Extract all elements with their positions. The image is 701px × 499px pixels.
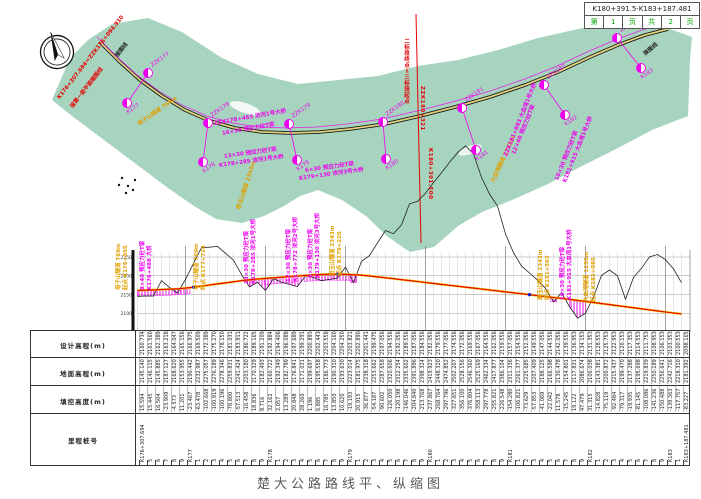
cut-fill-value: -150.488 xyxy=(660,389,666,411)
ground-elevation-value: 2199.470 xyxy=(620,359,626,383)
stake-number: 8 xyxy=(492,459,498,462)
ground-elevation-value: 2207.409 xyxy=(532,359,538,383)
stake-number: 7 xyxy=(244,459,250,462)
design-elevation-value: 2203.558 xyxy=(324,331,330,355)
design-elevation-value: 2177.056 xyxy=(444,331,450,355)
ground-elevation-value: 2261.377 xyxy=(516,359,522,383)
ground-elevation-value: 2190.310 xyxy=(332,359,338,383)
page-indicator: 第 1 页 共 2 页 xyxy=(585,16,699,28)
design-elevation-value: 2128.553 xyxy=(596,331,602,355)
stake-tick xyxy=(595,460,596,465)
design-elevation-value: 2189.556 xyxy=(404,331,410,355)
stake-tick xyxy=(483,460,484,465)
cut-fill-value: -23.909 xyxy=(164,392,170,411)
cut-fill-value: -16.458 xyxy=(244,392,250,411)
cut-fill-value: -213.768 xyxy=(420,389,426,411)
ground-elevation-value: 2203.180 xyxy=(244,359,250,383)
ground-elevation-value: 2502.207 xyxy=(452,359,458,383)
stake-tick xyxy=(435,460,436,465)
row-label-design-elevation: 设计高程(m) xyxy=(31,340,135,350)
cut-fill-value: 28.260 xyxy=(300,394,306,412)
stake-number: 1 xyxy=(196,459,202,462)
profile-structure-label: 大血湾隧道 1255m起点 K182+085 xyxy=(584,252,597,302)
table-divider xyxy=(31,413,689,414)
stake-tick xyxy=(675,460,676,465)
stake-tick xyxy=(419,460,420,465)
cut-fill-value: -63.478 xyxy=(196,392,202,411)
design-elevation-value: 2182.056 xyxy=(428,331,434,355)
stake-number: 1 xyxy=(436,459,442,462)
ground-elevation-value: 2190.442 xyxy=(188,359,194,383)
stake-number: 6 xyxy=(156,459,162,462)
cut-fill-value: -255.821 xyxy=(492,389,498,411)
design-elevation-value: 2165.156 xyxy=(180,331,186,355)
ground-elevation-value: 2137.288 xyxy=(628,359,634,383)
stake-tick xyxy=(579,460,580,465)
stake-tick xyxy=(475,460,476,465)
stake-number: 8 xyxy=(172,459,178,462)
cut-fill-value: -83.227 xyxy=(684,392,690,411)
cut-fill-value: -19.935 xyxy=(628,392,634,411)
design-elevation-value: 2134.153 xyxy=(580,331,586,355)
stake-tick xyxy=(659,460,660,465)
profile-structure-label: 6×30 预应力砼T梁K179+130 浓河3号大桥 xyxy=(308,213,321,278)
profile-structure-label: 10×30 预应力砼T梁K181+915 大血湾1号大桥 xyxy=(560,229,573,300)
stake-number: 3 xyxy=(212,459,218,462)
cut-fill-value: -90.602 xyxy=(380,392,386,411)
ground-elevation-value: 2215.437 xyxy=(612,359,618,383)
design-elevation-value: 2157.056 xyxy=(508,331,514,355)
stake-tick xyxy=(555,460,556,465)
profile-axis-bar xyxy=(132,250,135,332)
stake-number: 2 xyxy=(604,459,610,462)
profile-structure-label: 斑玉山隧道 2343m起点 K179+220 xyxy=(330,226,343,276)
stake-number: 3 xyxy=(452,459,458,462)
ground-elevation-value: 2186.773 xyxy=(324,359,330,383)
stake-tick xyxy=(251,460,252,465)
cut-fill-value: -126.050 xyxy=(388,389,394,411)
design-elevation-value: 2178.150 xyxy=(220,331,226,355)
ground-elevation-value: 2146.115 xyxy=(148,359,154,383)
design-elevation-value: 2194.406 xyxy=(276,331,282,355)
cut-fill-value: -146.046 xyxy=(404,389,410,411)
cut-fill-value: -81.145 xyxy=(636,392,642,411)
stake-number: 9 xyxy=(260,459,266,462)
ground-elevation-value: 2474.852 xyxy=(444,359,450,383)
stake-tick xyxy=(427,460,428,465)
stake-tick xyxy=(491,460,492,465)
ground-elevation-value: 2171.031 xyxy=(300,359,306,383)
cut-fill-value: -327.651 xyxy=(452,389,458,411)
design-elevation-value: 2152.056 xyxy=(524,331,530,355)
design-elevation-value: 2162.389 xyxy=(156,331,162,355)
total-label: 页 xyxy=(680,16,699,28)
stake-tick xyxy=(635,460,636,465)
ground-elevation-value: 2253.662 xyxy=(372,359,378,383)
stake-number: 7 xyxy=(164,459,170,462)
design-elevation-value: 2161.560 xyxy=(148,331,154,355)
design-elevation-value: 2196.088 xyxy=(284,331,290,355)
stake-tick xyxy=(147,460,148,465)
cut-fill-value: -75.119 xyxy=(604,392,610,411)
cut-fill-value: -120.198 xyxy=(396,389,402,411)
cut-fill-value: 2.057 xyxy=(276,397,282,411)
design-elevation-value: 2191.209 xyxy=(260,331,266,355)
stake-tick xyxy=(331,460,332,465)
design-elevation-value: 2179.556 xyxy=(436,331,442,355)
stake-tick xyxy=(411,460,412,465)
ground-elevation-value: 2276.189 xyxy=(212,359,218,383)
ground-elevation-value: 2278.346 xyxy=(220,359,226,383)
drawing-sheet: 22502200215021002050 ZZK177K177ZZK178K17… xyxy=(0,0,701,499)
stake-tick xyxy=(403,460,404,465)
stake-tick xyxy=(667,460,668,465)
stake-number: 7 xyxy=(324,459,330,462)
stake-tick xyxy=(307,460,308,465)
stake-tick xyxy=(523,460,524,465)
stake-tick xyxy=(587,460,588,465)
design-elevation-value: 2139.556 xyxy=(564,331,570,355)
stake-tick xyxy=(563,460,564,465)
cut-fill-value: -73.629 xyxy=(524,392,530,411)
ground-elevation-value: 2312.254 xyxy=(396,359,402,383)
stake-number: 6 xyxy=(556,459,562,462)
stake-number: 5 xyxy=(468,459,474,462)
cut-fill-value: 8.716 xyxy=(260,397,266,411)
design-elevation-value: 2172.389 xyxy=(204,331,210,355)
cut-fill-value: -268.764 xyxy=(436,389,442,411)
stake-tick xyxy=(203,460,204,465)
stake-tick xyxy=(291,460,292,465)
cut-fill-value: -23.467 xyxy=(188,392,194,411)
design-elevation-value: 2175.270 xyxy=(212,331,218,355)
cut-fill-value: 18.836 xyxy=(252,394,258,412)
boundary-annotation: ZZK180+321 xyxy=(419,86,425,131)
design-elevation-value: 2203.821 xyxy=(348,331,354,355)
stake-number: 2 xyxy=(204,459,210,462)
ground-elevation-value: 2320.606 xyxy=(388,359,394,383)
stake-number: 8 xyxy=(412,459,418,462)
stake-range: K180+391.5-K183+187.481 xyxy=(585,3,699,16)
design-elevation-value: 2174.556 xyxy=(452,331,458,355)
ground-elevation-value: 2193.630 xyxy=(340,359,346,383)
stake-number: K181 xyxy=(508,449,514,462)
stake-number: 8 xyxy=(652,459,658,462)
stake-number: 9 xyxy=(580,459,586,462)
stake-tick xyxy=(283,460,284,465)
design-elevation-value: 2108.953 xyxy=(652,331,658,355)
stake-tick xyxy=(379,460,380,465)
stake-tick xyxy=(539,460,540,465)
stake-number: 4 xyxy=(220,459,226,462)
ground-elevation-value: 2199.697 xyxy=(308,359,314,383)
design-elevation-value: 2183.911 xyxy=(236,331,242,355)
design-elevation-value: 2186.722 xyxy=(244,331,250,355)
stake-tick xyxy=(371,460,372,465)
design-elevation-value: 2103.353 xyxy=(668,331,674,355)
cut-fill-value: -356.100 xyxy=(460,389,466,411)
ground-elevation-value: 2100.038 xyxy=(588,359,594,383)
stake-tick xyxy=(603,460,604,465)
stake-tick xyxy=(627,460,628,465)
cut-fill-value: -19.193 xyxy=(348,392,354,411)
stake-tick xyxy=(499,460,500,465)
ground-elevation-value: 2391.896 xyxy=(412,359,418,383)
stake-tick xyxy=(315,460,316,465)
cut-fill-value: 11.201 xyxy=(180,394,186,412)
design-elevation-value: 2131.353 xyxy=(588,331,594,355)
stake-number: 1 xyxy=(676,459,682,462)
total-number: 2 xyxy=(661,16,680,28)
design-elevation-value: 2163.218 xyxy=(164,331,170,355)
stake-tick xyxy=(683,460,684,465)
ground-elevation-value: 2386.104 xyxy=(500,359,506,383)
ground-elevation-value: 2117.831 xyxy=(572,359,578,383)
stake-number: 2 xyxy=(524,459,530,462)
design-elevation-value: 2184.556 xyxy=(420,331,426,355)
cut-fill-value: -41.069 xyxy=(540,392,546,411)
profile-structure-label: 13×30 预应力砼T梁K178+285 浓河1号大桥 xyxy=(244,219,257,284)
stake-number: 9 xyxy=(180,459,186,462)
stake-tick xyxy=(163,460,164,465)
ground-elevation-value: 2546.360 xyxy=(468,359,474,383)
ground-elevation-value: 2218.310 xyxy=(676,359,682,383)
stake-number: 4 xyxy=(380,459,386,462)
profile-structure-label: 斑玉山隧道 2343m终点 K181+563 xyxy=(538,250,551,300)
cut-fill-value: -297.778 xyxy=(484,389,490,411)
cut-fill-value: -15.245 xyxy=(564,392,570,411)
design-elevation-value: 2202.890 xyxy=(356,331,362,355)
design-elevation-value: 2202.443 xyxy=(316,331,322,355)
design-elevation-value: 2204.250 xyxy=(340,331,346,355)
cut-fill-value: -14.828 xyxy=(596,392,602,411)
cut-fill-value: 13.850 xyxy=(332,394,338,412)
cut-fill-value: -22.042 xyxy=(548,392,554,411)
design-elevation-value: 2164.047 xyxy=(172,331,178,355)
ground-elevation-value: 2225.685 xyxy=(524,359,530,383)
ground-elevation-value: 2153.955 xyxy=(180,359,186,383)
stake-tick xyxy=(467,460,468,465)
ground-elevation-value: 2145.140 xyxy=(140,359,146,383)
stake-number: 6 xyxy=(476,459,482,462)
design-elevation-value: 2167.056 xyxy=(476,331,482,355)
design-elevation-value: 2122.953 xyxy=(612,331,618,355)
stake-number: 7 xyxy=(644,459,650,462)
stake-number: 7 xyxy=(564,459,570,462)
stake-number: 4 xyxy=(460,459,466,462)
design-elevation-value: 2197.689 xyxy=(292,331,298,355)
design-elevation-value: 2144.556 xyxy=(548,331,554,355)
design-elevation-value: 2125.753 xyxy=(604,331,610,355)
stake-number: K179 xyxy=(348,449,354,462)
stake-number: 2 xyxy=(444,459,450,462)
boundary-annotation: 二标段终点＝三标段起点 xyxy=(402,38,410,104)
row-label-ground-elevation: 地面高程(m) xyxy=(31,368,135,378)
stake-number: 8 xyxy=(332,459,338,462)
cut-fill-value: -78.800 xyxy=(228,392,234,411)
design-elevation-value: 2199.475 xyxy=(372,331,378,355)
cut-fill-value: 11.578 xyxy=(556,394,562,412)
page-label: 第 xyxy=(585,16,603,28)
stake-tick xyxy=(643,460,644,465)
elevation-axis-label: 2100 xyxy=(121,311,133,317)
cut-fill-value: -106.821 xyxy=(516,389,522,411)
stake-number: 7 xyxy=(404,459,410,462)
stake-tick xyxy=(267,460,268,465)
cut-fill-value: -100.196 xyxy=(220,389,226,411)
design-elevation-value: 2204.160 xyxy=(332,331,338,355)
stake-number: K183+187.481 xyxy=(684,424,690,462)
stake-number: 6 xyxy=(396,459,402,462)
ground-elevation-value: 2170.329 xyxy=(252,359,258,383)
stake-number: 4 xyxy=(300,459,306,462)
table-divider xyxy=(31,385,689,386)
profile-structure-label: 母子山隧道 769m终点 K177+724 xyxy=(194,243,207,290)
design-elevation-value: 2199.291 xyxy=(300,331,306,355)
stake-number: 9 xyxy=(340,459,346,462)
stake-number: 9 xyxy=(660,459,666,462)
total-label: 共 xyxy=(642,16,661,28)
stake-tick xyxy=(259,460,260,465)
ground-elevation-value: 2143.381 xyxy=(596,359,602,383)
design-elevation-value: 2117.353 xyxy=(628,331,634,355)
design-elevation-value: 2166.975 xyxy=(188,331,194,355)
page-number: 1 xyxy=(603,16,622,28)
cut-fill-value: -4.573 xyxy=(172,395,178,411)
stake-number: 8 xyxy=(572,459,578,462)
design-elevation-value: 2169.556 xyxy=(468,331,474,355)
row-label-cut-fill: 填挖高度(m) xyxy=(31,396,135,406)
stake-tick xyxy=(395,460,396,465)
stake-tick xyxy=(459,460,460,465)
cut-fill-value: 13.289 xyxy=(284,394,290,412)
design-elevation-value: 2159.556 xyxy=(500,331,506,355)
ground-elevation-value: 2448.320 xyxy=(436,359,442,383)
profile-structure-label: 母子山隧道 769m起点 K176+955 xyxy=(116,243,129,290)
design-elevation-value: 2192.884 xyxy=(268,331,274,355)
cut-fill-value: -226.548 xyxy=(500,389,506,411)
stake-tick xyxy=(243,460,244,465)
ground-elevation-value: 2154.801 xyxy=(564,359,570,383)
ground-elevation-value: 2182.799 xyxy=(284,359,290,383)
design-elevation-value: 2106.153 xyxy=(660,331,666,355)
stake-tick xyxy=(651,460,652,465)
cut-fill-value: 19.122 xyxy=(572,394,578,412)
stake-tick xyxy=(139,460,140,465)
design-elevation-value: 2194.556 xyxy=(388,331,394,355)
ground-elevation-value: 2086.674 xyxy=(580,359,586,383)
cut-fill-value: 47.479 xyxy=(580,394,586,412)
ground-elevation-value: 2335.602 xyxy=(404,359,410,383)
stake-tick xyxy=(155,460,156,465)
ground-elevation-value: 2223.014 xyxy=(348,359,354,383)
design-elevation-value: 2162.056 xyxy=(492,331,498,355)
design-elevation-value: 2164.556 xyxy=(484,331,490,355)
design-elevation-value: 2142.056 xyxy=(556,331,562,355)
stake-number: 2 xyxy=(284,459,290,462)
ground-elevation-value: 2287.658 xyxy=(380,359,386,383)
stake-number: K182 xyxy=(588,449,594,462)
stake-tick xyxy=(363,460,364,465)
ground-elevation-value: 2275.057 xyxy=(204,359,210,383)
stake-tick xyxy=(299,460,300,465)
stake-number: 5 xyxy=(628,459,634,462)
grade-change-point xyxy=(528,293,531,296)
ground-elevation-value: 2181.975 xyxy=(356,359,362,383)
stake-number: 6 xyxy=(316,459,322,462)
ground-elevation-value: 2241.424 xyxy=(236,359,242,383)
stake-number: 3 xyxy=(532,459,538,462)
cut-fill-value: -358.113 xyxy=(476,389,482,411)
stake-tick xyxy=(387,460,388,465)
sheet-caption: 楚大公路路线平、纵缩图 xyxy=(0,473,701,492)
ground-elevation-value: 2192.349 xyxy=(276,359,282,383)
stake-tick xyxy=(531,460,532,465)
cut-fill-value: 16.785 xyxy=(324,394,330,412)
cut-fill-value: -36.877 xyxy=(364,392,370,411)
cut-fill-value: -54.187 xyxy=(372,392,378,411)
stake-number: 1 xyxy=(596,459,602,462)
boundary-annotation: K180+391.500 xyxy=(427,148,433,199)
ground-elevation-value: 2525.169 xyxy=(476,359,482,383)
cut-fill-value: -108.086 xyxy=(644,389,650,411)
ground-elevation-value: 2195.558 xyxy=(316,359,322,383)
stake-tick xyxy=(347,460,348,465)
ground-elevation-value: 2311.336 xyxy=(508,359,514,383)
cut-fill-value: -102.668 xyxy=(204,389,210,411)
cut-fill-value: -237.867 xyxy=(428,389,434,411)
stake-tick xyxy=(571,460,572,465)
stake-tick xyxy=(451,460,452,465)
table-divider xyxy=(31,357,689,358)
design-elevation-value: 2192.056 xyxy=(396,331,402,355)
stake-number: 7 xyxy=(484,459,490,462)
stake-number: 4 xyxy=(620,459,626,462)
design-elevation-value: 2197.056 xyxy=(380,331,386,355)
stake-number: 6 xyxy=(236,459,242,462)
ground-elevation-value: 2195.698 xyxy=(636,359,642,383)
cut-fill-value: 16.504 xyxy=(156,394,162,412)
ground-elevation-value: 2168.620 xyxy=(172,359,178,383)
design-elevation-value: 2187.056 xyxy=(412,331,418,355)
stake-number: 8 xyxy=(252,459,258,462)
design-elevation-value: 2181.031 xyxy=(228,331,234,355)
design-elevation-value: 2160.734 xyxy=(140,331,146,355)
stake-number: 5 xyxy=(148,459,154,462)
elevation-axis-label: 2150 xyxy=(121,292,133,298)
stake-number: 4 xyxy=(540,459,546,462)
cut-fill-value: -100.919 xyxy=(212,389,218,411)
ground-elevation-value: 2188.125 xyxy=(540,359,546,383)
ground-elevation-value: 2417.877 xyxy=(492,359,498,383)
ground-elevation-value: 2242.716 xyxy=(668,359,674,383)
profile-structure-label: 12×30 预应力砼T梁K178+772 浓河2号大桥 xyxy=(286,217,299,282)
ground-elevation-value: 2528.156 xyxy=(460,359,466,383)
cut-fill-value: -57.853 xyxy=(532,392,538,411)
stake-tick xyxy=(339,460,340,465)
stake-tick xyxy=(187,460,188,465)
cut-fill-value: -376.804 xyxy=(468,389,474,411)
stake-tick xyxy=(323,460,324,465)
cut-fill-value: -139.363 xyxy=(668,389,674,411)
ground-elevation-value: 2200.872 xyxy=(604,359,610,383)
stake-tick xyxy=(507,460,508,465)
stake-tick xyxy=(235,460,236,465)
cut-fill-value: 10.620 xyxy=(340,394,346,412)
ground-elevation-value: 2462.334 xyxy=(484,359,490,383)
ground-elevation-value: 2238.318 xyxy=(364,359,370,383)
stake-number: K183 xyxy=(668,449,674,462)
